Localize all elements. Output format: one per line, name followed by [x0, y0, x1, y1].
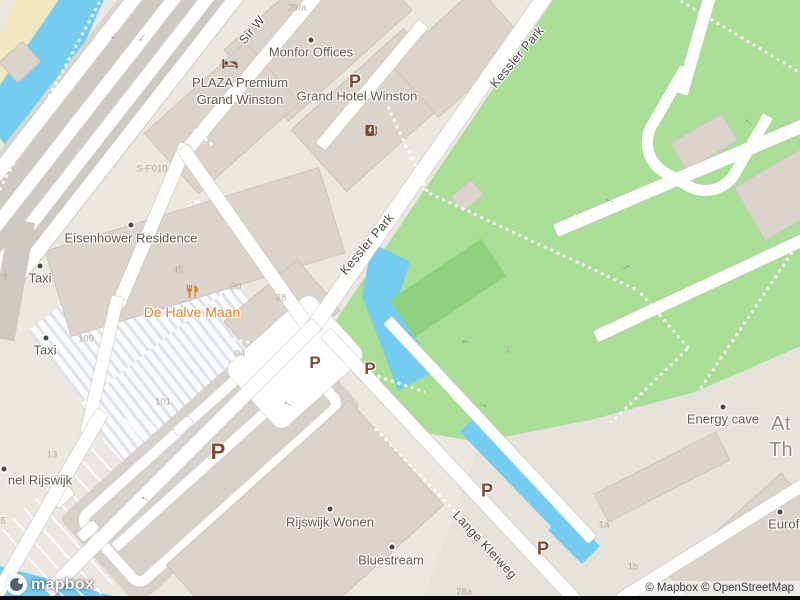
street-label: Kessler Park: [337, 211, 396, 278]
house-number: 109: [78, 334, 94, 345]
map-attribution[interactable]: © Mapbox © OpenStreetMap: [639, 581, 800, 596]
poi-dot[interactable]: [2, 467, 7, 472]
poi-label[interactable]: nel Rijswijk: [8, 473, 72, 490]
street-label: Kessler Park: [487, 24, 546, 91]
charging-icon[interactable]: [365, 124, 378, 143]
one-way-arrow-icon: →: [134, 29, 154, 48]
label-layer: Sir WKessler ParkKessler ParkLange Kleiw…: [0, 0, 800, 600]
house-number: 30: [231, 282, 242, 293]
parking-icon[interactable]: P: [309, 353, 320, 373]
mapbox-logo-icon: [6, 574, 27, 595]
poi-label[interactable]: At Th: [769, 411, 793, 463]
poi-label[interactable]: Energy cave: [687, 412, 759, 429]
parking-icon[interactable]: P: [364, 359, 375, 379]
restaurant-icon[interactable]: [185, 284, 200, 304]
poi-label[interactable]: Taxi: [33, 343, 56, 360]
poi-dot[interactable]: [778, 510, 783, 515]
poi-dot[interactable]: [44, 336, 49, 341]
mapbox-logo[interactable]: mapbox: [6, 574, 94, 595]
one-way-arrow-icon: →: [601, 194, 617, 212]
house-number: 13: [47, 450, 58, 461]
house-number: 1: [505, 345, 510, 356]
parking-icon[interactable]: P: [211, 439, 226, 465]
street-label: Sir W: [236, 13, 268, 47]
poi-label[interactable]: Monfor Offices: [269, 45, 353, 62]
poi-label[interactable]: Eisenhower Residence: [65, 231, 198, 248]
house-number: 1a: [599, 520, 610, 531]
street-label: Lange Kleiweg: [450, 508, 520, 581]
poi-dot[interactable]: [390, 545, 395, 550]
poi-label[interactable]: Eurofins: [768, 517, 800, 534]
poi-dot[interactable]: [328, 507, 333, 512]
poi-dot[interactable]: [129, 223, 134, 228]
one-way-arrow-icon: →: [616, 256, 634, 275]
house-number: 5: [0, 516, 5, 527]
house-number: 1b: [628, 562, 639, 573]
poi-label[interactable]: Taxi: [28, 271, 51, 288]
parking-icon[interactable]: P: [481, 481, 493, 502]
mapbox-logo-word: mapbox: [31, 576, 94, 594]
house-number: 28: [276, 293, 287, 304]
lodging-icon[interactable]: [222, 57, 238, 75]
house-number: S-F010: [136, 164, 167, 175]
map-canvas[interactable]: Sir WKessler ParkKessler ParkLange Kleiw…: [0, 0, 800, 600]
house-number: 101: [155, 397, 171, 408]
one-way-arrow-icon: →: [737, 114, 757, 134]
house-number: 29/a: [288, 3, 307, 14]
poi-dot[interactable]: [38, 264, 43, 269]
house-number: 94: [235, 349, 246, 360]
one-way-arrow-icon: →: [475, 394, 491, 411]
poi-label[interactable]: De Halve Maan: [144, 303, 241, 321]
one-way-arrow-icon: →: [106, 27, 126, 46]
one-way-arrow-icon: →: [278, 396, 297, 415]
one-way-arrow-icon: →: [459, 336, 474, 353]
poi-dot[interactable]: [721, 405, 726, 410]
one-way-arrow-icon: →: [135, 491, 154, 510]
one-way-arrow-icon: →: [0, 271, 11, 284]
house-number: 45: [173, 265, 184, 276]
parking-icon[interactable]: P: [537, 539, 549, 560]
poi-dot[interactable]: [309, 38, 314, 43]
bottom-black-bar: [0, 596, 800, 600]
parking-icon[interactable]: P: [349, 72, 361, 93]
poi-label[interactable]: Rijswijk Wonen: [286, 515, 374, 532]
poi-label[interactable]: Bluestream: [358, 553, 424, 570]
poi-label[interactable]: PLAZA Premium Grand Winston: [192, 75, 288, 109]
